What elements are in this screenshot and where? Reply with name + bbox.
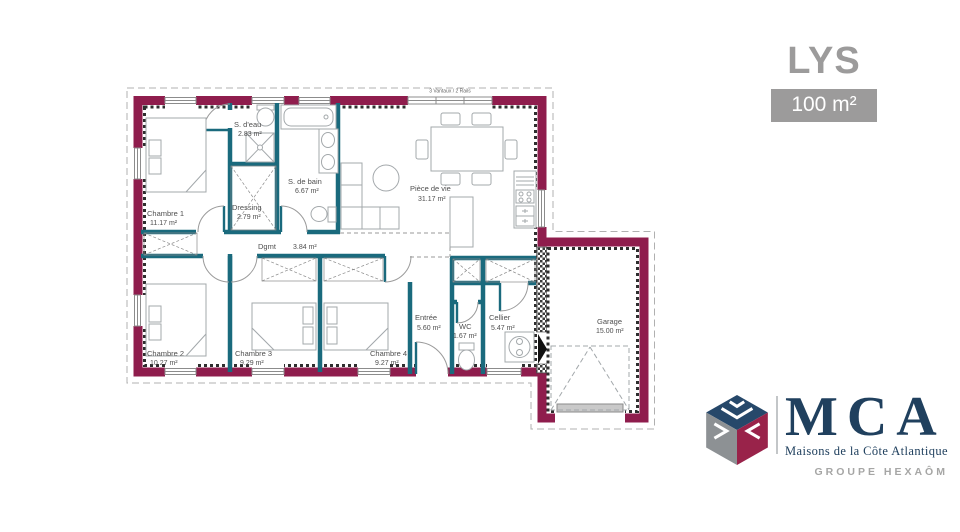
svg-text:Chambre 3: Chambre 3 [235, 349, 272, 358]
toilet-icon [311, 207, 336, 223]
brand-group-label: GROUPE HEXAÔM [785, 466, 948, 478]
room-label-s-eau: S. d'eau 2.83 m² [234, 120, 262, 138]
exterior-walls [134, 96, 649, 423]
bed-icon [146, 118, 206, 192]
kitchen-island-icon [450, 197, 473, 247]
svg-text:9.29 m²: 9.29 m² [240, 360, 264, 367]
logo-divider [776, 396, 778, 454]
svg-text:15.00 m²: 15.00 m² [596, 328, 624, 335]
toilet-icon [459, 343, 475, 370]
svg-text:Chambre 2: Chambre 2 [147, 349, 184, 358]
page: 3 Vantaux / 2 Rails Chambre 1 11.17 m² S… [0, 0, 960, 532]
room-label-garage: Garage 15.00 m² [596, 317, 624, 335]
bathtub-icon [281, 105, 336, 129]
svg-text:Dgmt: Dgmt [258, 242, 277, 251]
garage-swing-icon [551, 346, 629, 410]
garage-door-icon [557, 404, 623, 412]
bed-icon [146, 284, 206, 356]
svg-text:Dressing: Dressing [232, 203, 262, 212]
svg-text:9.27 m²: 9.27 m² [375, 360, 399, 367]
kitchen-counter-icon [514, 171, 536, 228]
bed-icon [324, 303, 388, 350]
room-label-dgmt: Dgmt 3.84 m² [258, 242, 317, 251]
title-block: LYS 100 m² [771, 42, 877, 122]
svg-text:Chambre 4: Chambre 4 [370, 349, 407, 358]
room-label-cellier: Cellier 5.47 m² [489, 313, 515, 332]
open-boundaries [340, 233, 450, 257]
svg-text:31.17 m²: 31.17 m² [418, 196, 446, 203]
washing-machine-icon [505, 332, 534, 362]
svg-text:Cellier: Cellier [489, 313, 511, 322]
svg-text:S. de bain: S. de bain [288, 177, 322, 186]
room-label-chambre-1: Chambre 1 11.17 m² [147, 209, 184, 227]
svg-text:Entrée: Entrée [415, 313, 437, 322]
svg-text:11.17 m²: 11.17 m² [150, 220, 178, 227]
room-label-piece-de-vie: Pièce de vie 31.17 m² [410, 184, 451, 203]
dining-table-icon [416, 113, 517, 185]
svg-text:WC: WC [459, 322, 472, 331]
door-threshold-icon [538, 334, 547, 364]
room-label-wc: WC 1.67 m² [453, 322, 477, 340]
area-badge: 100 m² [771, 89, 877, 122]
brand-block: MCA Maisons de la Côte Atlantique GROUPE… [704, 393, 948, 478]
svg-text:S. d'eau: S. d'eau [234, 120, 261, 129]
room-label-entree: Entrée 5.60 m² [415, 313, 441, 332]
bed-icon [252, 303, 316, 350]
svg-text:3.84 m²: 3.84 m² [293, 244, 317, 251]
brand-name: MCA [785, 395, 948, 440]
svg-text:Pièce de vie: Pièce de vie [410, 184, 451, 193]
model-name: LYS [771, 42, 877, 80]
double-basin-icon [319, 129, 338, 173]
svg-text:10.27 m²: 10.27 m² [150, 360, 178, 367]
room-label-dressing: Dressing 2.79 m² [232, 203, 262, 221]
round-table-icon [373, 165, 399, 191]
svg-text:1.67 m²: 1.67 m² [453, 333, 477, 340]
svg-text:Chambre 1: Chambre 1 [147, 209, 184, 218]
bay-window-annotation: 3 Vantaux / 2 Rails [429, 89, 471, 95]
svg-text:6.67 m²: 6.67 m² [295, 188, 319, 195]
brand-subtitle: Maisons de la Côte Atlantique [785, 444, 948, 459]
svg-text:5.47 m²: 5.47 m² [491, 325, 515, 332]
svg-text:2.79 m²: 2.79 m² [237, 214, 261, 221]
room-label-s-de-bain: S. de bain 6.67 m² [288, 177, 322, 195]
mca-cube-logo-icon [704, 393, 770, 467]
svg-text:Garage: Garage [597, 317, 622, 326]
svg-text:2.83 m²: 2.83 m² [238, 131, 262, 138]
svg-text:5.60 m²: 5.60 m² [417, 325, 441, 332]
